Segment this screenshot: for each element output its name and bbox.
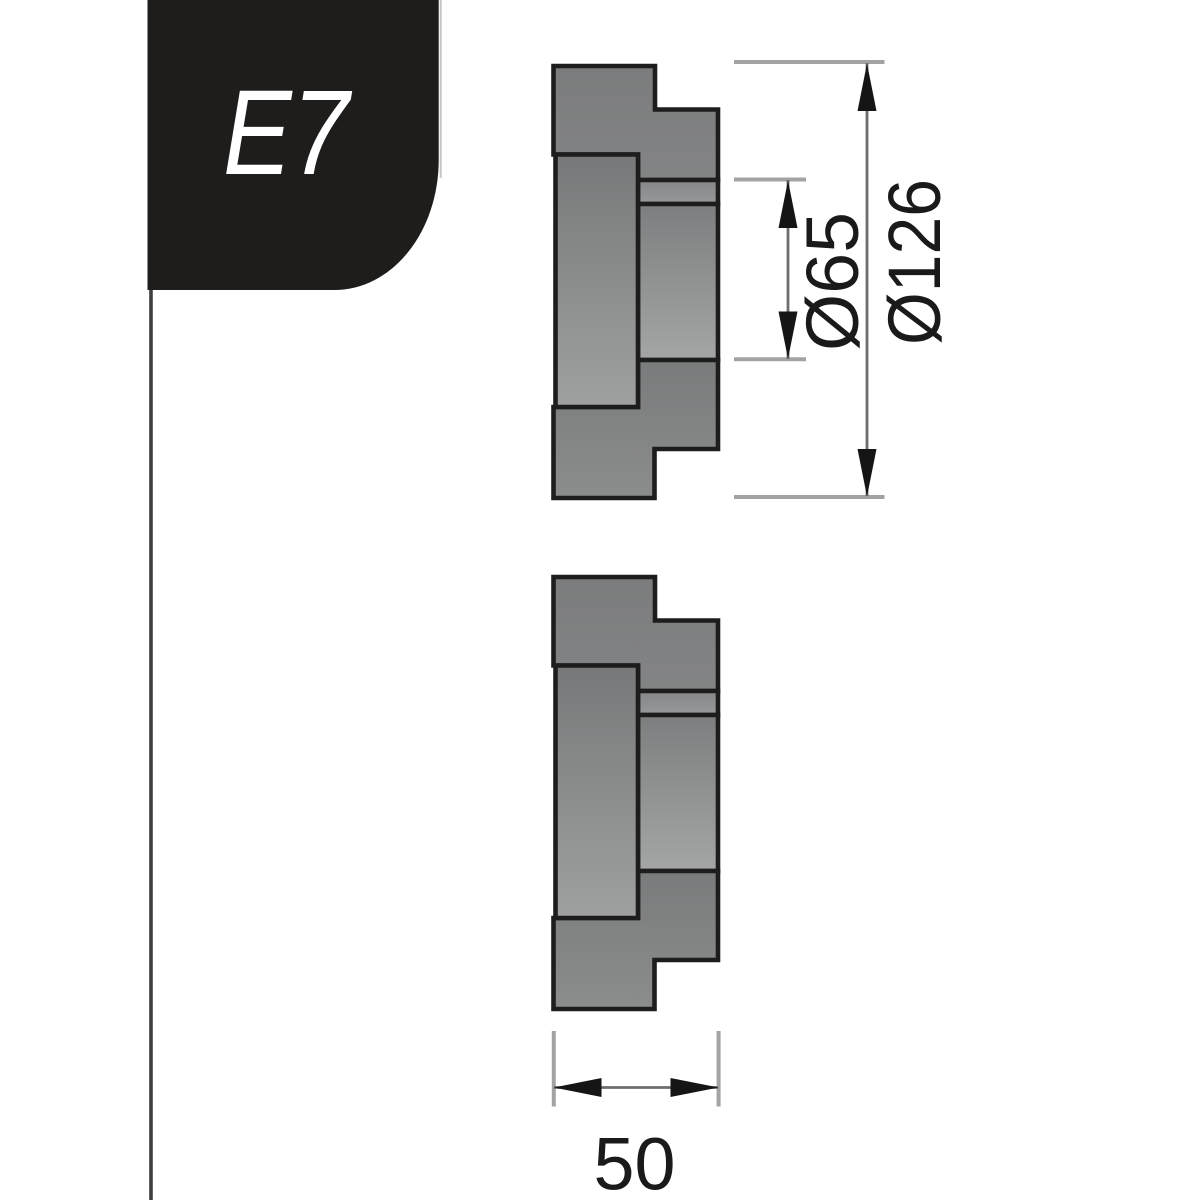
svg-text:50: 50 — [594, 1123, 676, 1200]
svg-text:E7: E7 — [223, 64, 353, 200]
svg-text:Ø126: Ø126 — [873, 179, 956, 345]
svg-text:Ø65: Ø65 — [791, 212, 874, 351]
